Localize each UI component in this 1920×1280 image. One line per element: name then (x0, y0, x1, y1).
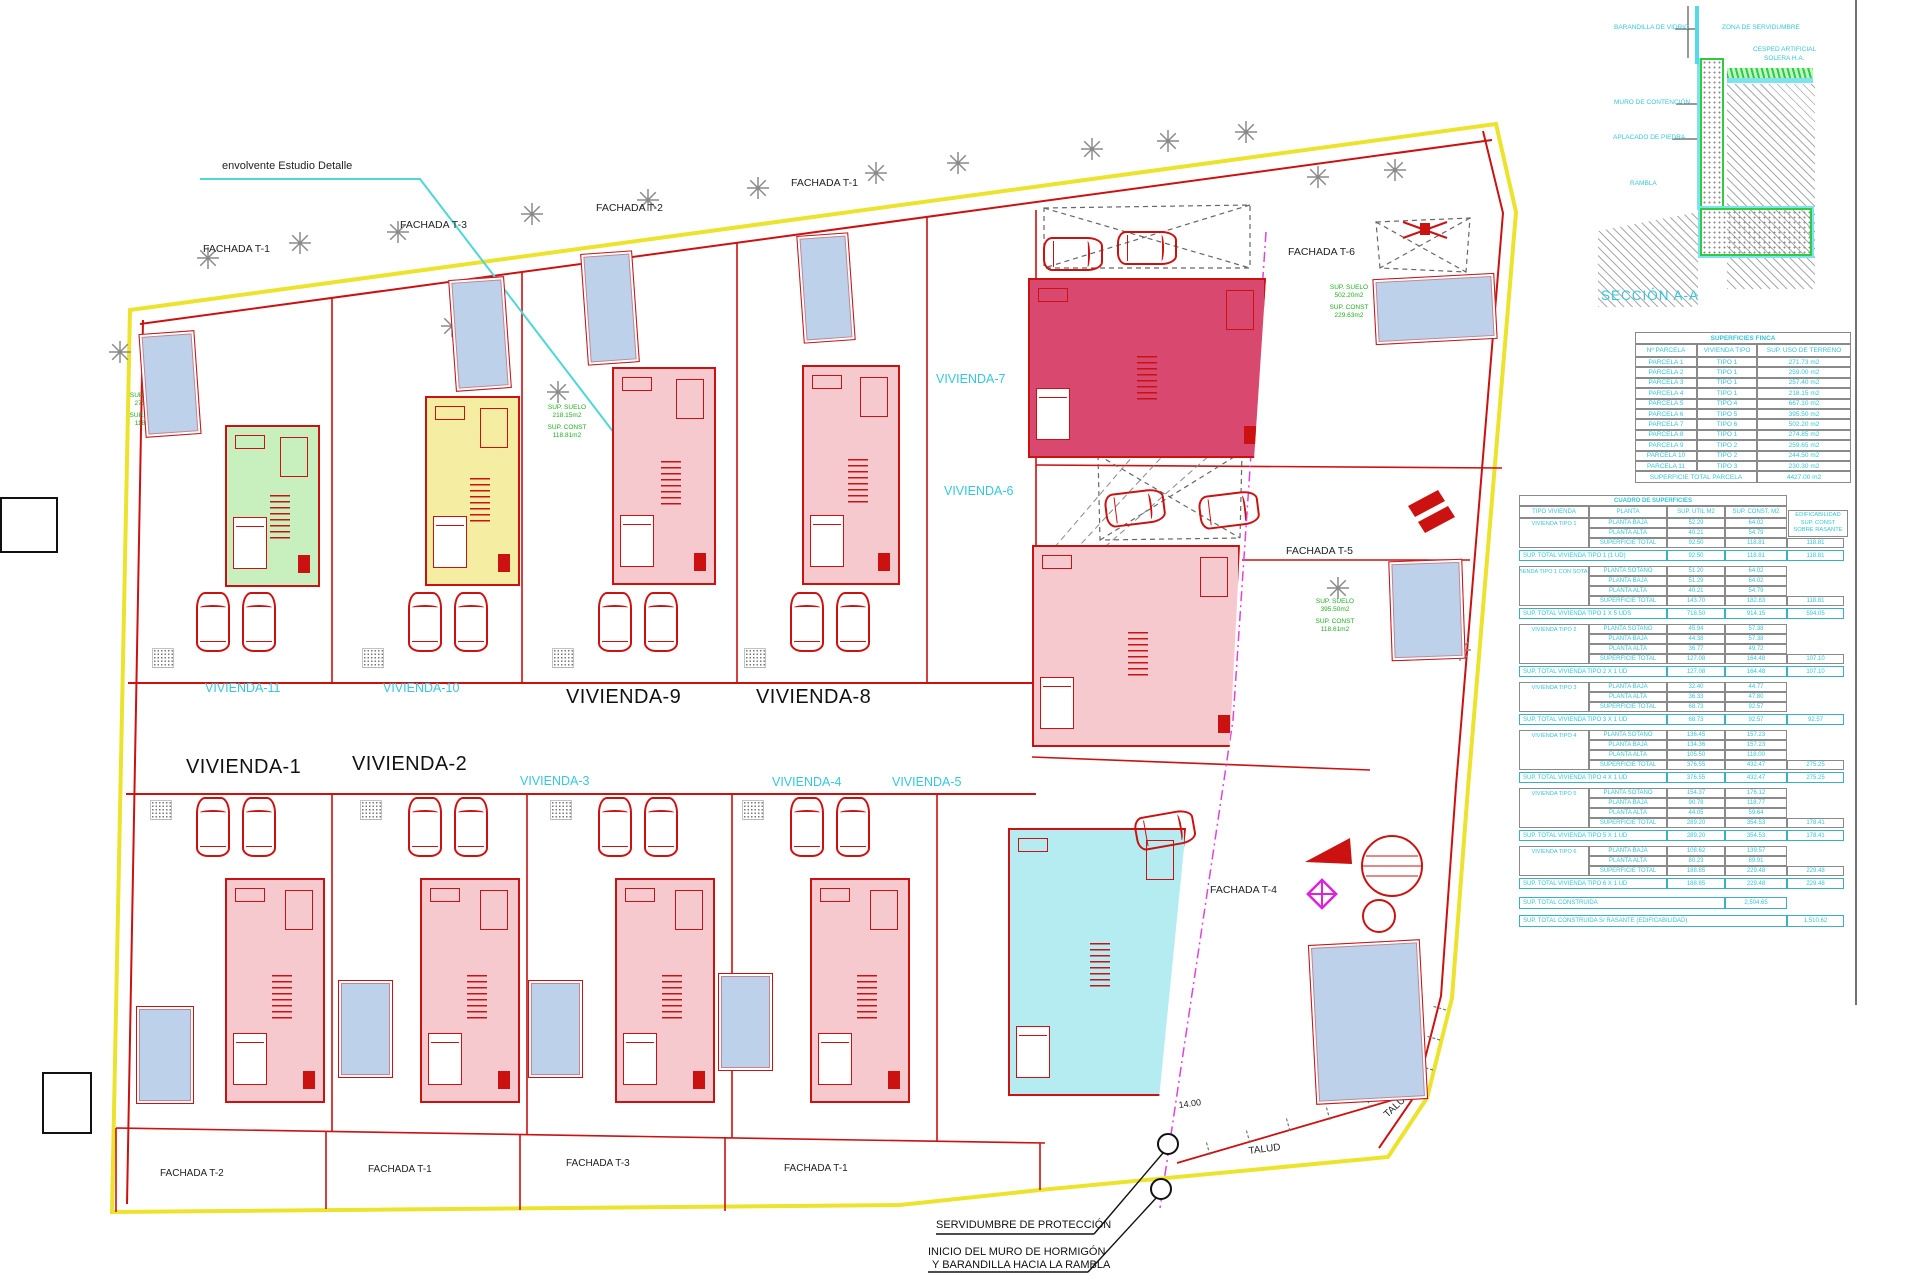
planta-cell: PLANTA BAJA (1589, 740, 1667, 750)
fixture-icon (878, 553, 890, 571)
util-cell: 68.73 (1667, 702, 1725, 712)
column-header: SUP. USO DE TERRENO (1757, 344, 1851, 357)
table-row: SUPERFICIE TOTAL188.85229.48229.48 (1519, 866, 1844, 876)
util-cell: 36.33 (1667, 692, 1725, 702)
column-header: Nº PARCELA (1635, 344, 1697, 357)
table-row: PARCELA 3TIPO 1257.40 m2 (1635, 378, 1851, 388)
stairs-icon (470, 478, 490, 524)
planta-cell: SUPERFICIE TOTAL (1589, 818, 1667, 828)
column-header: TIPO VIVIENDA (1519, 506, 1589, 518)
group-total-label: SUP. TOTAL VIVIENDA TIPO 4 X 1 UD (1519, 772, 1667, 783)
paver-tile (744, 648, 766, 668)
column-header: VIVIENDA TIPO (1697, 344, 1757, 357)
util-cell: 90.78 (1667, 798, 1725, 808)
fachada-t4-label: FACHADA T-4 (1210, 884, 1277, 896)
planta-cell: SUPERFICIE TOTAL (1589, 654, 1667, 664)
planta-cell: PLANTA BAJA (1589, 846, 1667, 856)
table-row: PLANTA ALTA36.3347.80 (1519, 692, 1844, 702)
edif-cell (1787, 576, 1844, 586)
const-cell: 432.47 (1725, 760, 1787, 770)
fachada-t1-top-center-label: FACHADA T-1 (791, 177, 858, 189)
sup-note-line: 502.20m2 (1318, 292, 1380, 300)
fachada-t1-bottom-a-label: FACHADA T-1 (368, 1164, 432, 1175)
bed-icon (1040, 677, 1074, 729)
table-row: PLANTA ALTA105.50118.00 (1519, 750, 1844, 760)
table-cell: PARCELA 5 (1635, 399, 1697, 409)
planta-cell: PLANTA SOTANO (1589, 624, 1667, 634)
table-cell: TIPO 1 (1697, 388, 1757, 398)
section-barandilla-label: BARANDILLA DE VIDRIO (1614, 24, 1689, 31)
table-row: VIVIENDA TIPO 5PLANTA SOTANO154.37176.12 (1519, 788, 1844, 798)
util-cell: 136.45 (1667, 730, 1725, 740)
group-name-cell (1519, 856, 1589, 866)
table-row: SUPERFICIE TOTAL PARCELA4427.00 m2 (1635, 471, 1851, 483)
edif-cell: 178.41 (1787, 818, 1844, 828)
terrace-hatch (1362, 856, 1422, 876)
section-muro-label: MURO DE CONTENCIÓN (1614, 99, 1690, 106)
const-cell: 54.79 (1725, 528, 1787, 538)
car-icon (1117, 231, 1177, 265)
house-plan (225, 425, 320, 587)
stairs-icon (1128, 632, 1148, 678)
table-row: SUP. TOTAL VIVIENDA TIPO 1 X 5 UDS718.50… (1519, 608, 1844, 619)
house-plan (1032, 545, 1240, 747)
util-cell: 108.62 (1667, 846, 1725, 856)
pool (1308, 939, 1428, 1105)
sup-note-line: SUP. CONST (536, 424, 598, 432)
paver-tile (360, 800, 382, 820)
group-name-cell: VIVIENDA TIPO 1 CON SOTANO (1519, 566, 1589, 576)
table-row: PARCELA 2TIPO 1259.00 m2 (1635, 367, 1851, 377)
palm-tree-icon (1081, 138, 1103, 160)
const-cell: 64.02 (1725, 518, 1787, 528)
table-row: PLANTA BAJA44.3857.38 (1519, 634, 1844, 644)
util-cell: 154.37 (1667, 788, 1725, 798)
sup-note-line: SUP. SUELO (1304, 598, 1366, 606)
bed-icon (1036, 388, 1070, 440)
fixture-icon (1218, 715, 1230, 733)
car-icon (1043, 237, 1103, 271)
group-name-cell (1519, 818, 1589, 828)
group-name-cell (1519, 528, 1589, 538)
table-cell: TIPO 1 (1697, 357, 1757, 367)
vivienda-6-label: VIVIENDA-6 (944, 484, 1013, 498)
group-total-label: SUP. TOTAL VIVIENDA TIPO 3 X 1 UD (1519, 714, 1667, 725)
util-cell: 52.29 (1667, 518, 1725, 528)
table-icon (860, 377, 888, 417)
envelope-note: envolvente Estudio Detalle (222, 160, 352, 172)
table-row: VIVIENDA TIPO 2PLANTA SOTANO45.9457.38 (1519, 624, 1844, 634)
magenta-diamond-icon (1308, 880, 1336, 908)
table-row: PARCELA 6TIPO 5395.50 m2 (1635, 409, 1851, 419)
const-cell: 64.02 (1725, 576, 1787, 586)
stairs-icon (272, 975, 292, 1021)
stairs-icon (270, 495, 290, 541)
vivienda-1-label: VIVIENDA-1 (186, 756, 301, 779)
table-cell: TIPO 4 (1697, 399, 1757, 409)
table-cell: 271.73 m2 (1757, 357, 1851, 367)
table-row: SUPERFICIE TOTAL68.7392.57 (1519, 702, 1844, 712)
vivienda-8-label: VIVIENDA-8 (756, 686, 871, 709)
group-total-util: 188.85 (1667, 878, 1725, 889)
group-name-cell (1519, 654, 1589, 664)
muro-note-line1: INICIO DEL MURO DE HORMIGÓN (928, 1246, 1105, 1258)
planta-cell: PLANTA BAJA (1589, 576, 1667, 586)
table-row: VIVIENDA TIPO 6PLANTA BAJA108.62139.57 (1519, 846, 1844, 856)
table-row: SUPERFICIE TOTAL376.55432.47275.25 (1519, 760, 1844, 770)
table-row: SUP. TOTAL VIVIENDA TIPO 3 X 1 UD68.7392… (1519, 714, 1844, 725)
edif-cell (1787, 566, 1844, 576)
group-name-cell: VIVIENDA TIPO 3 (1519, 682, 1589, 692)
planta-cell: PLANTA BAJA (1589, 798, 1667, 808)
note-marker-2 (1151, 1179, 1171, 1199)
table-cell: PARCELA 6 (1635, 409, 1697, 419)
house-plan (615, 878, 715, 1103)
pool (796, 232, 855, 343)
planta-cell: PLANTA ALTA (1589, 644, 1667, 654)
table-cell: 218.15 m2 (1757, 388, 1851, 398)
stairs-icon (857, 975, 877, 1021)
stairs-icon (662, 975, 682, 1021)
servidumbre-note: SERVIDUMBRE DE PROTECCIÓN (936, 1219, 1111, 1231)
util-cell: 92.50 (1667, 538, 1725, 548)
stairs-icon (848, 459, 868, 505)
const-cell: 59.64 (1725, 808, 1787, 818)
table-cell: TIPO 1 (1697, 430, 1757, 440)
sofa-icon (622, 377, 652, 391)
group-total-label: SUP. TOTAL VIVIENDA TIPO 2 X 1 UD (1519, 666, 1667, 677)
edif-cell (1787, 624, 1844, 634)
section-railing (1695, 6, 1699, 64)
stairs-icon (467, 975, 487, 1021)
section-cesped-label: CESPED ARTIFICIAL (1753, 46, 1816, 53)
sup-suelo-note: SUP. SUELO395.50m2SUP. CONST118.61m2 (1304, 598, 1366, 635)
const-cell: 182.83 (1725, 596, 1787, 606)
group-name-cell (1519, 586, 1589, 596)
group-name-cell (1519, 740, 1589, 750)
sup-note-line: SUP. SUELO (536, 404, 598, 412)
table-row: SUPERFICIE TOTAL92.50118.81118.81 (1519, 538, 1844, 548)
table-icon (675, 890, 703, 930)
table-row: SUPERFICIE TOTAL127.08164.48107.10 (1519, 654, 1844, 664)
sofa-icon (235, 888, 265, 902)
group-name-cell (1519, 760, 1589, 770)
site-plan-canvas: SUPERFICIES FINCANº PARCELAVIVIENDA TIPO… (0, 0, 1920, 1280)
grand-total-value: 1,510.62 (1787, 915, 1844, 927)
group-total-edif: 594.05 (1787, 608, 1844, 619)
table-row: PLANTA BAJA134.36157.23 (1519, 740, 1844, 750)
sup-note-line: SUP. SUELO (1318, 284, 1380, 292)
paver-tile (742, 800, 764, 820)
car-icon (196, 797, 230, 857)
bed-icon (428, 1033, 462, 1085)
umbrella-icon (1305, 838, 1352, 864)
edif-cell (1787, 702, 1844, 712)
palm-tree-icon (521, 203, 543, 225)
table-cell: PARCELA 7 (1635, 419, 1697, 429)
group-name-cell: VIVIENDA TIPO 2 (1519, 624, 1589, 634)
const-cell: 118.00 (1725, 750, 1787, 760)
table-cell: 395.50 m2 (1757, 409, 1851, 419)
table-row: SUP. TOTAL CONSTRUIDA S/ RASANTE (EDIFIC… (1519, 915, 1844, 927)
util-cell: 143.70 (1667, 596, 1725, 606)
house-plan (802, 365, 900, 585)
fixture-icon (694, 553, 706, 571)
util-cell: 44.38 (1667, 634, 1725, 644)
group-total-util: 376.55 (1667, 772, 1725, 783)
fixture-icon (498, 1071, 510, 1089)
edif-cell: 118.81 (1787, 596, 1844, 606)
planta-cell: SUPERFICIE TOTAL (1589, 538, 1667, 548)
util-cell: 32.40 (1667, 682, 1725, 692)
const-cell: 118.77 (1725, 798, 1787, 808)
table-row: PLANTA ALTA80.2389.91 (1519, 856, 1844, 866)
table-footer-value: 4427.00 m2 (1757, 471, 1851, 483)
table-cell: 244.50 m2 (1757, 451, 1851, 461)
fixture-icon (303, 1071, 315, 1089)
group-name-cell (1519, 692, 1589, 702)
const-cell: 47.80 (1725, 692, 1787, 702)
section-solera-label: SOLERA H.A. (1764, 55, 1804, 62)
group-total-const: 432.47 (1725, 772, 1787, 783)
group-name-cell (1519, 634, 1589, 644)
planta-cell: SUPERFICIE TOTAL (1589, 596, 1667, 606)
edif-cell (1787, 644, 1844, 654)
util-cell: 127.08 (1667, 654, 1725, 664)
table-cell: 259.65 m2 (1757, 440, 1851, 450)
sofa-icon (430, 888, 460, 902)
edif-cell (1787, 730, 1844, 740)
sup-note-line: 218.15m2 (536, 412, 598, 420)
table-row: PLANTA BAJA90.78118.77 (1519, 798, 1844, 808)
fachada-t3-bottom-label: FACHADA T-3 (566, 1158, 630, 1169)
section-wall (1700, 58, 1724, 210)
fachada-t5-label: FACHADA T-5 (1286, 545, 1353, 557)
group-total-edif: 229.48 (1787, 878, 1844, 889)
edif-cell (1787, 856, 1844, 866)
paver-tile (362, 648, 384, 668)
fixture-icon (1244, 426, 1256, 444)
table-icon (285, 890, 313, 930)
edif-cell: 118.81 (1787, 538, 1844, 548)
edif-cell (1787, 788, 1844, 798)
const-cell: 157.23 (1725, 740, 1787, 750)
table-cell: 502.20 m2 (1757, 419, 1851, 429)
palm-tree-icon (865, 162, 887, 184)
section-solera (1727, 78, 1813, 83)
planta-cell: PLANTA BAJA (1589, 682, 1667, 692)
sup-note-line: 229.63m2 (1318, 312, 1380, 320)
util-cell: 40.21 (1667, 528, 1725, 538)
bed-icon (623, 1033, 657, 1085)
car-icon (790, 797, 824, 857)
table-row: PARCELA 9TIPO 2259.65 m2 (1635, 440, 1851, 450)
util-cell: 376.55 (1667, 760, 1725, 770)
house-plan (425, 396, 520, 586)
group-total-const: 118.81 (1725, 550, 1787, 561)
table-cell: 230.30 m2 (1757, 461, 1851, 471)
group-total-edif: 275.25 (1787, 772, 1844, 783)
const-cell: 57.38 (1725, 634, 1787, 644)
palm-tree-icon (1327, 577, 1349, 599)
sofa-icon (820, 888, 850, 902)
planta-cell: PLANTA SOTANO (1589, 788, 1667, 798)
planta-cell: PLANTA ALTA (1589, 808, 1667, 818)
group-name-cell: VIVIENDA TIPO 6 (1519, 846, 1589, 856)
table-cell: PARCELA 8 (1635, 430, 1697, 440)
group-total-const: 914.15 (1725, 608, 1787, 619)
car-icon (408, 797, 442, 857)
palm-tree-icon (547, 381, 569, 403)
sup-suelo-note: SUP. SUELO502.20m2SUP. CONST229.63m2 (1318, 284, 1380, 321)
planta-cell: PLANTA ALTA (1589, 528, 1667, 538)
table-row: SUPERFICIES FINCA (1635, 332, 1851, 344)
planta-cell: PLANTA SOTANO (1589, 566, 1667, 576)
section-footing (1700, 208, 1812, 256)
edif-cell (1787, 740, 1844, 750)
table-cell: TIPO 1 (1697, 378, 1757, 388)
table-row: SUP. TOTAL VIVIENDA TIPO 1 (1 UD)92.5011… (1519, 550, 1844, 561)
table-cuadro-superficies: CUADRO DE SUPERFICIESTIPO VIVIENDAPLANTA… (1519, 495, 1844, 927)
table-icon (480, 890, 508, 930)
edif-cell: 107.10 (1787, 654, 1844, 664)
table-row: SUPERFICIE TOTAL143.70182.83118.81 (1519, 596, 1844, 606)
table-row: VIVIENDA TIPO 1 CON SOTANOPLANTA SOTANO5… (1519, 566, 1844, 576)
const-cell: 64.02 (1725, 566, 1787, 576)
table-row: PLANTA ALTA40.2154.79 (1519, 586, 1844, 596)
palm-tree-icon (1157, 130, 1179, 152)
palm-tree-icon (289, 232, 311, 254)
section-aplacado-label: APLACADO DE PIEDRA (1613, 134, 1685, 141)
edif-note-line: SOBRE RASANTE (1789, 527, 1847, 535)
fixture-icon (298, 555, 310, 573)
table-footer-label: SUPERFICIE TOTAL PARCELA (1635, 471, 1757, 483)
vivienda-10-label: VIVIENDA-10 (383, 681, 459, 695)
car-icon (644, 592, 678, 652)
const-cell: 44.77 (1725, 682, 1787, 692)
edif-cell (1787, 846, 1844, 856)
bed-icon (233, 517, 267, 569)
note-marker-1 (1158, 1134, 1178, 1154)
group-total-label: SUP. TOTAL VIVIENDA TIPO 5 X 1 UD (1519, 830, 1667, 841)
car-icon (454, 592, 488, 652)
group-name-cell (1519, 750, 1589, 760)
table-cell: 667.10 m2 (1757, 399, 1851, 409)
table-title: CUADRO DE SUPERFICIES (1519, 495, 1787, 506)
table-cell: PARCELA 4 (1635, 388, 1697, 398)
group-total-const: 164.48 (1725, 666, 1787, 677)
fixture-icon (498, 554, 510, 572)
table-row: VIVIENDA TIPO 3PLANTA BAJA32.4044.77 (1519, 682, 1844, 692)
edif-cell (1787, 692, 1844, 702)
sofa-icon (1018, 838, 1048, 852)
house-plan (1028, 278, 1266, 458)
vivienda-11-label: VIVIENDA-11 (205, 681, 281, 695)
table-icon (676, 379, 704, 419)
house-plan (612, 367, 716, 585)
sofa-icon (1042, 555, 1072, 569)
column-header: SUP. UTIL M2 (1667, 506, 1725, 518)
pool (136, 1006, 194, 1104)
fachada-t2-bottom-label: FACHADA T-2 (160, 1168, 224, 1179)
table-icon (280, 437, 308, 477)
car-icon (644, 797, 678, 857)
bottom-strip (116, 1128, 1045, 1212)
edif-cell (1787, 798, 1844, 808)
util-cell: 51.29 (1667, 576, 1725, 586)
stairs-icon (1090, 943, 1110, 989)
group-total-const: 92.57 (1725, 714, 1787, 725)
pool (528, 980, 583, 1078)
section-grass-strip (1727, 68, 1813, 78)
group-total-edif: 92.57 (1787, 714, 1844, 725)
table-cell: PARCELA 2 (1635, 367, 1697, 377)
const-cell: 229.48 (1725, 866, 1787, 876)
car-icon (196, 592, 230, 652)
section-rambla-label: RAMBLA (1630, 180, 1657, 187)
table-cell: 257.40 m2 (1757, 378, 1851, 388)
left-edge-box-2 (42, 1072, 92, 1134)
car-icon (408, 592, 442, 652)
table-cell: TIPO 3 (1697, 461, 1757, 471)
car-icon (242, 797, 276, 857)
sup-note-line: SUP. CONST (1304, 618, 1366, 626)
car-icon (598, 592, 632, 652)
pool (448, 276, 512, 392)
table-cell: PARCELA 3 (1635, 378, 1697, 388)
palm-tree-icon (109, 341, 131, 363)
pool (1372, 273, 1497, 345)
planta-cell: PLANTA ALTA (1589, 586, 1667, 596)
sail-post (1420, 223, 1430, 235)
table-row: Nº PARCELAVIVIENDA TIPOSUP. USO DE TERRE… (1635, 344, 1851, 357)
edif-cell (1787, 634, 1844, 644)
util-cell: 36.77 (1667, 644, 1725, 654)
planta-cell: PLANTA ALTA (1589, 692, 1667, 702)
group-name-cell: VIVIENDA TIPO 4 (1519, 730, 1589, 740)
util-cell: 40.21 (1667, 586, 1725, 596)
bed-icon (818, 1033, 852, 1085)
car-icon (598, 797, 632, 857)
const-cell: 176.12 (1725, 788, 1787, 798)
stairs-icon (661, 461, 681, 507)
fachada-t1-top-left-label: FACHADA T-1 (203, 243, 270, 255)
pool (718, 973, 773, 1071)
group-total-util: 289.20 (1667, 830, 1725, 841)
planta-cell: PLANTA BAJA (1589, 518, 1667, 528)
group-total-util: 127.08 (1667, 666, 1725, 677)
fachada-t6-label: FACHADA T-6 (1288, 246, 1355, 258)
const-cell: 57.38 (1725, 624, 1787, 634)
bed-icon (620, 515, 654, 567)
const-cell: 49.72 (1725, 644, 1787, 654)
util-cell: 80.23 (1667, 856, 1725, 866)
planta-cell: SUPERFICIE TOTAL (1589, 760, 1667, 770)
edif-cell (1787, 586, 1844, 596)
palm-tree-icon (1307, 166, 1329, 188)
planta-cell: PLANTA BAJA (1589, 634, 1667, 644)
table-icon (1200, 557, 1228, 597)
vivienda-5-label: VIVIENDA-5 (892, 775, 961, 789)
house-plan (1008, 828, 1186, 1096)
table-cell: PARCELA 11 (1635, 461, 1697, 471)
sofa-icon (812, 375, 842, 389)
group-name-cell (1519, 866, 1589, 876)
pool (138, 330, 201, 438)
table-row: SUP. TOTAL VIVIENDA TIPO 4 X 1 UD376.554… (1519, 772, 1844, 783)
vivienda-4-label: VIVIENDA-4 (772, 775, 841, 789)
group-total-const: 229.48 (1725, 878, 1787, 889)
